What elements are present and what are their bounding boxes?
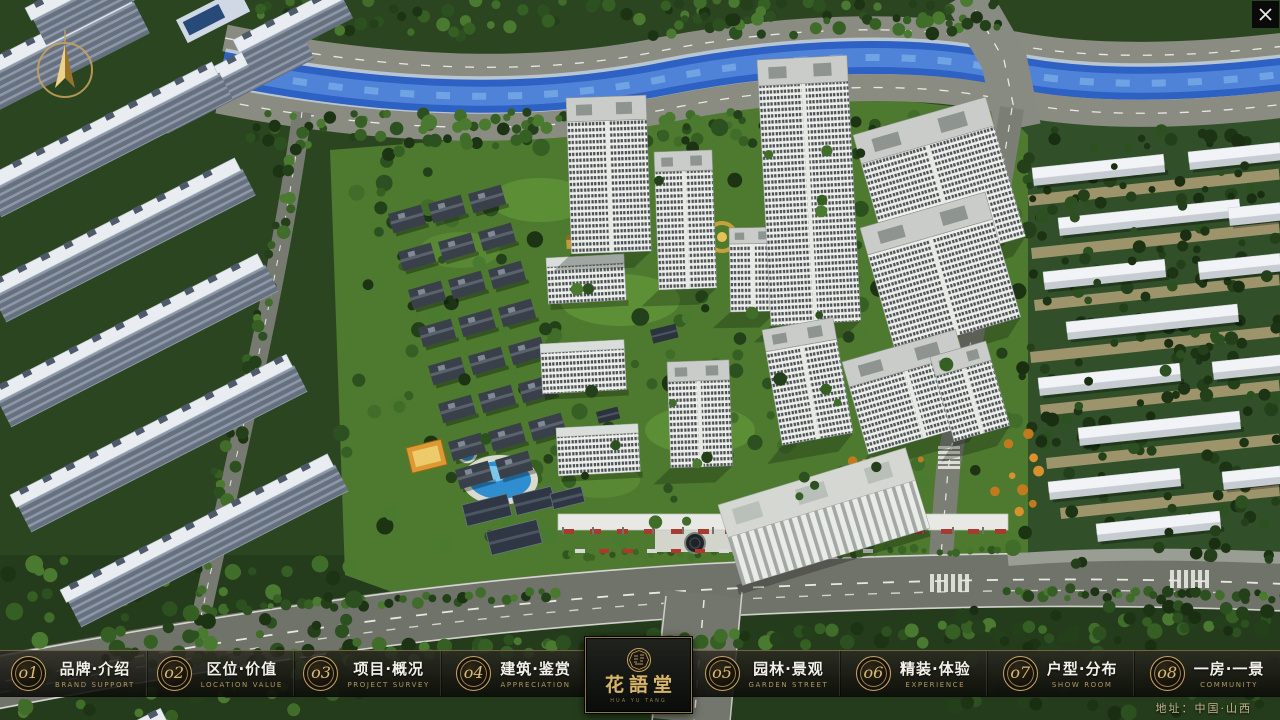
nav-item-sublabel: GARDEN STREET [749,681,829,689]
nav-group-left: o1 品牌·介绍 BRAND SUPPORT o2 区位·价值 LOCATION… [0,651,587,696]
project-logo-plate[interactable]: 花語堂 HUA YU TANG [585,637,692,713]
nav-item-sublabel: LOCATION VALUE [201,681,283,689]
nav-item-sublabel: APPRECIATION [501,681,571,689]
nav-item-project[interactable]: o3 项目·概况 PROJECT SURVEY [293,651,440,696]
nav-item-interior[interactable]: o6 精装·体验 EXPERIENCE [839,651,986,696]
nav-item-label: 一房·一景 [1194,658,1265,679]
project-address: 地址：中国·山西 [1156,700,1253,716]
nav-item-number-badge: o1 [11,656,46,691]
nav-item-label: 园林·景观 [753,658,824,679]
project-seal-icon [626,647,652,673]
nav-item-number-badge: o3 [303,656,338,691]
nav-item-community[interactable]: o8 一房·一景 COMMUNITY [1133,651,1280,696]
nav-item-label: 精装·体验 [900,658,971,679]
close-icon [1259,8,1272,21]
nav-item-number-badge: o2 [157,656,192,691]
nav-item-number-badge: o6 [856,656,891,691]
compass-north-icon [34,26,96,104]
nav-item-label: 品牌·介绍 [60,658,131,679]
nav-item-number-badge: o8 [1150,656,1185,691]
nav-item-sublabel: PROJECT SURVEY [347,681,429,689]
nav-item-garden[interactable]: o5 园林·景观 GARDEN STREET [694,651,840,696]
nav-item-number-badge: o5 [705,656,740,691]
nav-item-location[interactable]: o2 区位·价值 LOCATION VALUE [146,651,293,696]
presentation-window: o1 品牌·介绍 BRAND SUPPORT o2 区位·价值 LOCATION… [0,0,1280,720]
project-title: 花語堂 [600,676,677,695]
project-subtitle: HUA YU TANG [610,698,666,704]
nav-item-number-badge: o7 [1003,656,1038,691]
nav-item-label: 项目·概况 [353,658,424,679]
nav-item-sublabel: SHOW ROOM [1052,681,1113,689]
nav-item-brand[interactable]: o1 品牌·介绍 BRAND SUPPORT [0,651,146,696]
close-button[interactable] [1252,1,1279,28]
nav-item-number-badge: o4 [456,656,491,691]
nav-item-units[interactable]: o7 户型·分布 SHOW ROOM [986,651,1133,696]
masterplan-3d-view[interactable] [0,0,1280,720]
nav-group-right: o5 园林·景观 GARDEN STREET o6 精装·体验 EXPERIEN… [694,651,1280,696]
nav-item-label: 户型·分布 [1047,658,1118,679]
nav-item-sublabel: EXPERIENCE [905,681,965,689]
nav-item-label: 区位·价值 [206,658,277,679]
nav-item-architecture[interactable]: o4 建筑·鉴赏 APPRECIATION [440,651,587,696]
nav-item-sublabel: BRAND SUPPORT [55,681,135,689]
nav-item-label: 建筑·鉴赏 [500,658,571,679]
nav-item-sublabel: COMMUNITY [1200,681,1258,689]
